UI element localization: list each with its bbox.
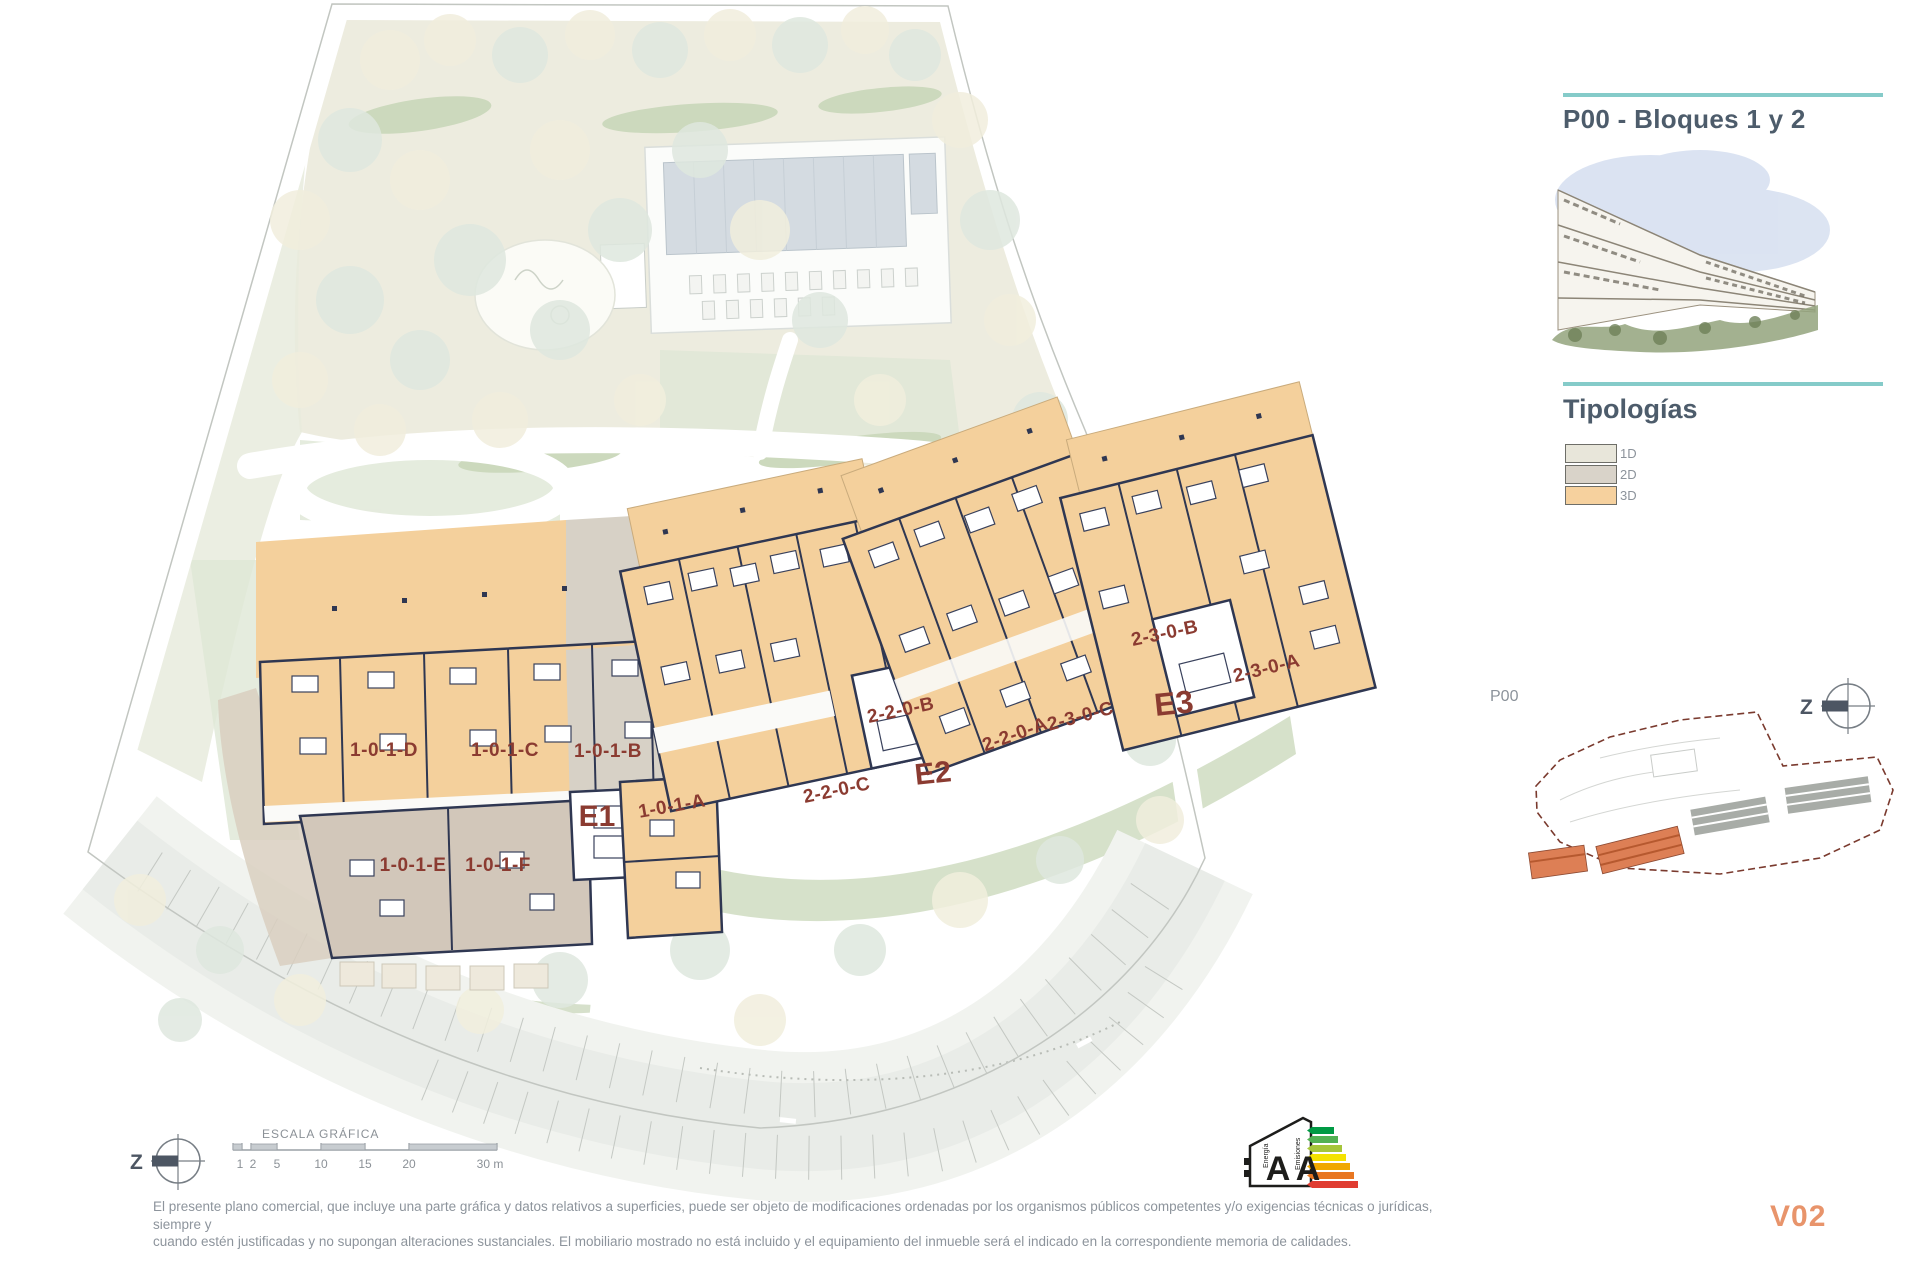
unit-label: 1-0-1-C <box>471 740 539 761</box>
site-plan-canvas: 1-0-1-D 1-0-1-C 1-0-1-B 1-0-1-A 1-0-1-E … <box>0 0 1920 1280</box>
legend-label-2d: 2D <box>1620 467 1637 482</box>
north-label: Z <box>1800 696 1813 719</box>
block-label-e3: E3 <box>1153 683 1196 723</box>
scale-tick: 30 m <box>477 1157 504 1171</box>
legend-label-3d: 3D <box>1620 488 1637 503</box>
disclaimer-line-2: cuando estén justificadas y no supongan … <box>153 1233 1483 1251</box>
minimap-floor-label: P00 <box>1490 688 1518 706</box>
unit-label: 1-0-1-F <box>465 855 531 876</box>
north-compass-icon: Z <box>130 1134 205 1190</box>
legend-row-2d: 2D <box>1565 464 1637 485</box>
location-minimap <box>1528 712 1893 879</box>
energy-axis-energia: Energía <box>1263 1143 1270 1168</box>
header-rule <box>1563 93 1883 97</box>
legend-swatch-1d <box>1565 444 1617 463</box>
scale-bar-title: ESCALA GRÁFICA <box>262 1126 379 1141</box>
plan-sheet: 1-0-1-D 1-0-1-C 1-0-1-B 1-0-1-A 1-0-1-E … <box>0 0 1920 1280</box>
energy-axis-emisiones: Emisiones <box>1295 1137 1302 1170</box>
unit-label: 1-0-1-B <box>574 741 642 762</box>
disclaimer-line-1: El presente plano comercial, que incluye… <box>153 1198 1483 1233</box>
energy-rating-icon: A Energía A Emisiones <box>1244 1118 1358 1188</box>
legal-disclaimer: El presente plano comercial, que incluye… <box>153 1198 1483 1251</box>
scale-tick: 15 <box>358 1157 372 1171</box>
unit-label: 1-0-1-D <box>350 740 418 761</box>
legend-label-1d: 1D <box>1620 446 1637 461</box>
legend-swatch-2d <box>1565 465 1617 484</box>
scale-tick: 5 <box>274 1157 281 1171</box>
site-plan: 1-0-1-D 1-0-1-C 1-0-1-B 1-0-1-A 1-0-1-E … <box>88 4 1375 1180</box>
building-illustration <box>1552 150 1830 353</box>
block-label-e2: E2 <box>913 755 953 792</box>
unit-label: 1-0-1-E <box>380 855 447 876</box>
scale-tick: 10 <box>314 1157 328 1171</box>
scale-tick: 2 <box>250 1157 257 1171</box>
north-label: Z <box>130 1151 143 1174</box>
legend-row-3d: 3D <box>1565 485 1637 506</box>
version-label: V02 <box>1770 1200 1826 1234</box>
typologies-rule <box>1563 382 1883 386</box>
typologies-title: Tipologías <box>1563 394 1698 425</box>
scale-tick: 1 <box>237 1157 244 1171</box>
typologies-legend: 1D 2D 3D <box>1565 443 1637 506</box>
page-title: P00 - Bloques 1 y 2 <box>1563 104 1806 135</box>
legend-swatch-3d <box>1565 486 1617 505</box>
block-label-e1: E1 <box>579 800 616 833</box>
legend-row-1d: 1D <box>1565 443 1637 464</box>
north-compass-icon: Z <box>1800 678 1875 734</box>
scale-tick: 20 <box>402 1157 416 1171</box>
